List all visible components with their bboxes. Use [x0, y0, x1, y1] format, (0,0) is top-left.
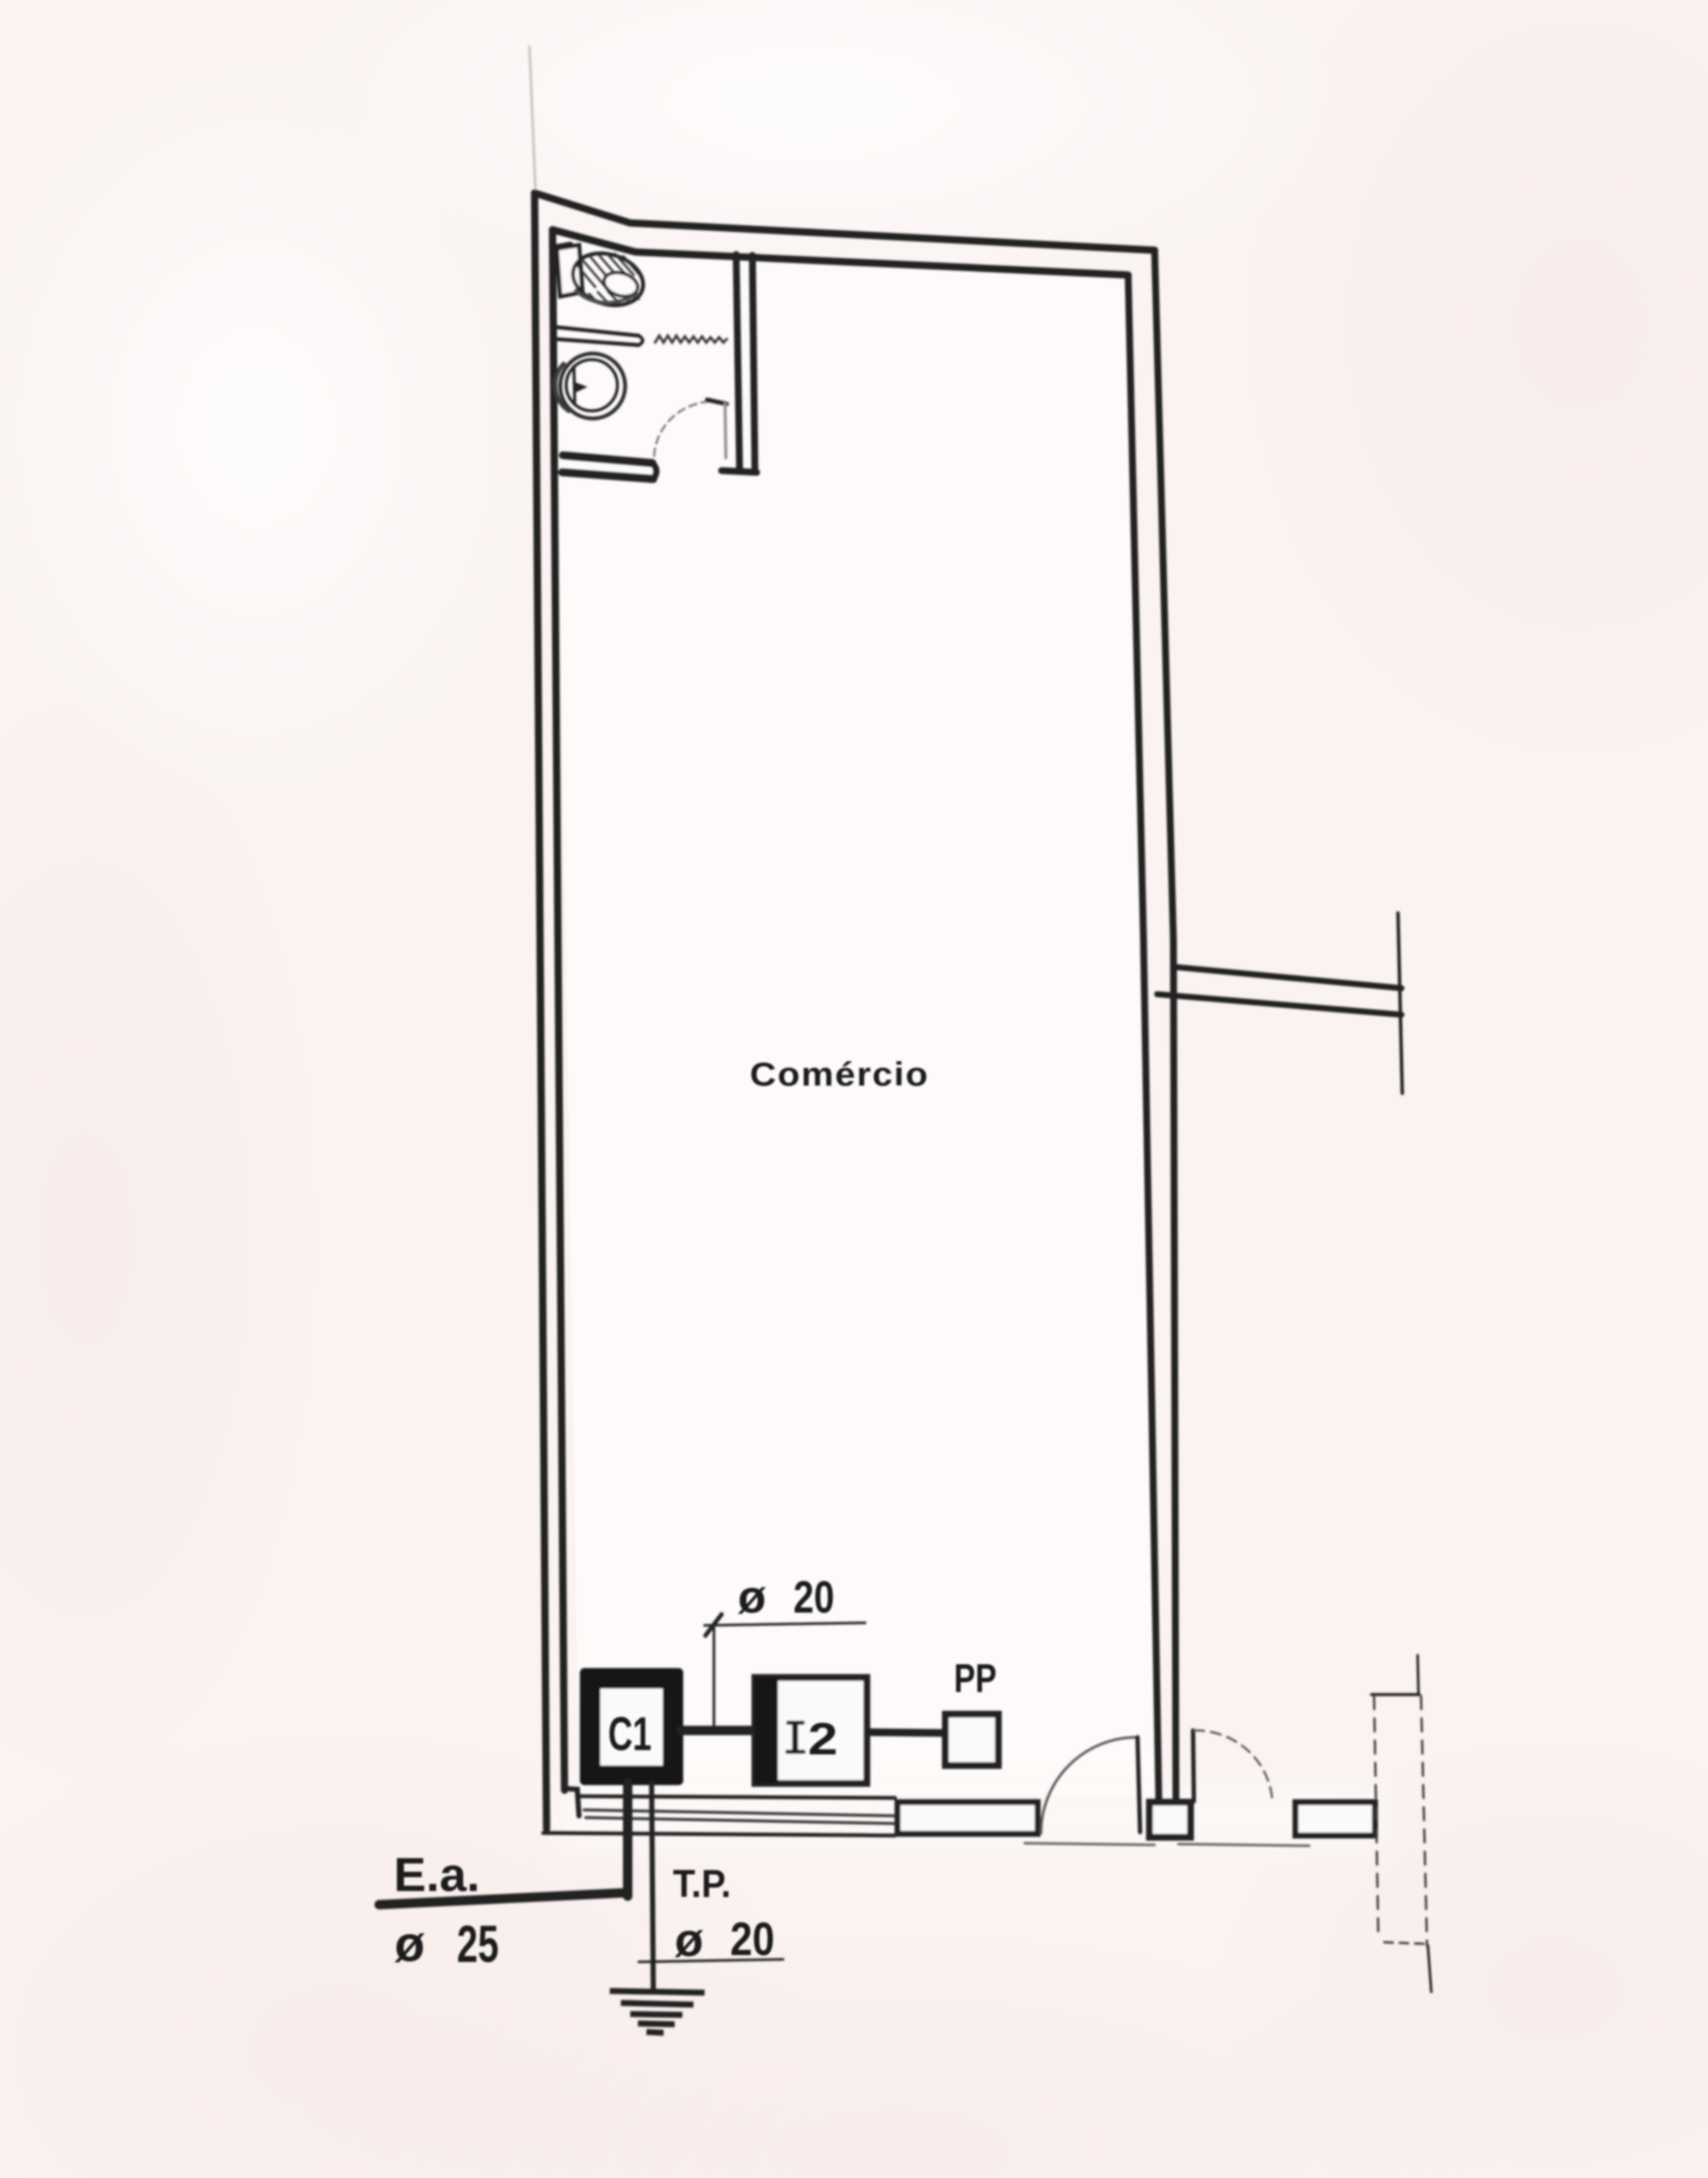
svg-text:ø: ø: [738, 1572, 766, 1623]
svg-text:20: 20: [730, 1912, 775, 1965]
svg-text:2: 2: [808, 1714, 838, 1765]
svg-text:E.a.: E.a.: [394, 1847, 480, 1901]
svg-text:ø: ø: [395, 1917, 425, 1972]
svg-text:ø: ø: [675, 1913, 704, 1966]
svg-text:PP: PP: [954, 1655, 997, 1701]
svg-text:Comércio: Comércio: [750, 1057, 929, 1093]
svg-text:25: 25: [457, 1915, 499, 1973]
svg-text:C1: C1: [608, 1707, 652, 1760]
svg-text:20: 20: [793, 1572, 834, 1623]
svg-text:T.P.: T.P.: [673, 1862, 731, 1906]
